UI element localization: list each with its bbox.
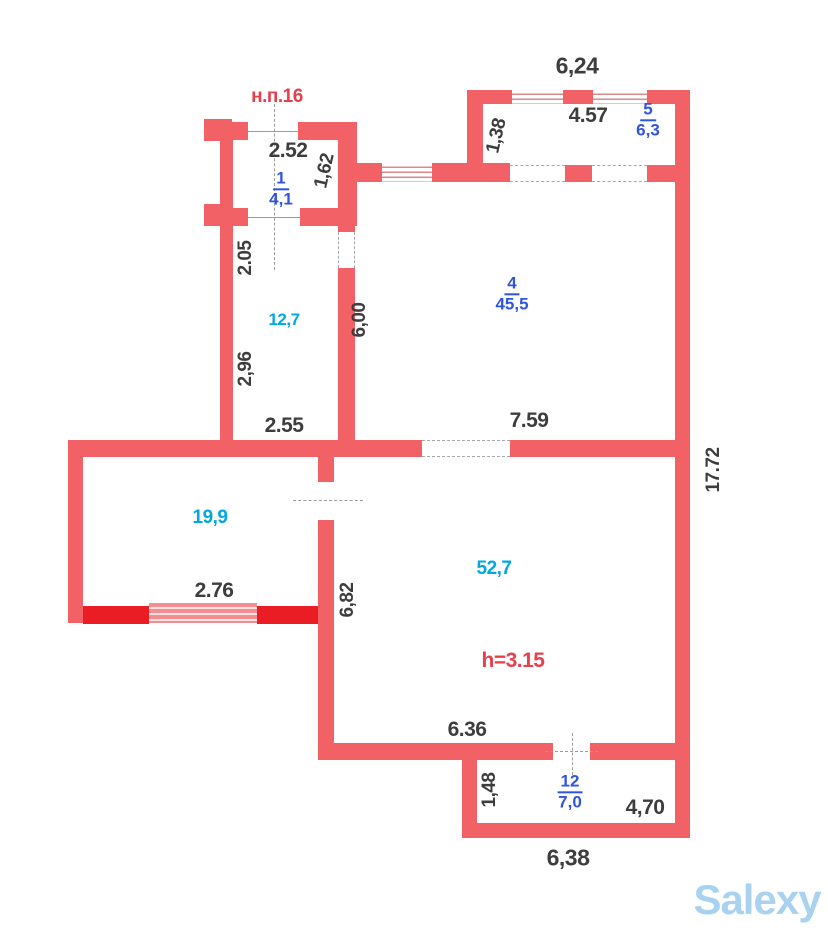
wall-segment: [565, 165, 592, 182]
axis-line: [545, 751, 598, 752]
dimension-label: 2.76: [195, 579, 234, 603]
dimension-label: 6.36: [448, 718, 487, 742]
dimension-label: 2.55: [265, 414, 304, 438]
dimension-label: 4,70: [626, 796, 665, 820]
dimension-label: 2,96: [235, 352, 257, 387]
room-label: 4 45,5: [495, 274, 528, 313]
wall-segment: [204, 208, 248, 226]
wall-segment: [68, 440, 83, 623]
dimension-label: 2.52: [269, 139, 308, 163]
dimension-label: 1,38: [482, 116, 511, 155]
room-number: 5: [640, 100, 655, 121]
wall-segment: [338, 208, 355, 232]
wall-segment: [318, 520, 334, 745]
wall-segment: [462, 823, 690, 838]
wall-segment: [338, 268, 355, 445]
room-area: 7,0: [558, 793, 582, 812]
plan-title: н.п.16: [251, 86, 303, 108]
doorway-opening: [338, 232, 355, 268]
room-label: 12 7,0: [558, 772, 583, 811]
highlighted-wall-segment: [257, 606, 318, 624]
doorway-opening: [592, 165, 647, 182]
wall-segment: [647, 165, 675, 182]
window-symbol: [248, 122, 298, 140]
room-number: 1: [273, 169, 288, 190]
wall-segment: [357, 163, 382, 182]
dimension-label: 17.72: [703, 447, 725, 492]
dimension-label: 6,38: [547, 845, 590, 872]
doorway-opening: [422, 440, 510, 457]
dimension-label: 6,24: [556, 53, 599, 80]
dimension-label: 1,48: [479, 773, 501, 808]
floor-plan: н.п.16 6,24 4.57 1,38 2.52 1,62 2.05 2,9…: [0, 0, 828, 930]
area-label: 52,7: [477, 558, 512, 580]
wall-segment: [675, 90, 690, 838]
wall-segment: [563, 90, 593, 104]
window-symbol: [318, 482, 334, 520]
room-label: 1 4,1: [269, 169, 293, 208]
room-area: 45,5: [495, 295, 528, 314]
salexy-watermark: Salexy: [693, 876, 820, 924]
wall-segment: [467, 90, 512, 104]
area-label: 12,7: [268, 310, 299, 330]
dimension-label: 6,00: [349, 303, 371, 338]
window-symbol: [382, 163, 432, 182]
doorway-opening: [510, 165, 565, 182]
dimension-label: 6,82: [337, 583, 359, 618]
dimension-label: 4.57: [569, 104, 608, 128]
room-area: 6,3: [636, 121, 660, 140]
ceiling-height-label: h=3.15: [482, 649, 545, 673]
axis-line: [572, 733, 573, 775]
axis-line: [293, 500, 363, 501]
room-area: 4,1: [269, 190, 293, 209]
wall-segment: [220, 226, 233, 445]
wall-segment: [318, 743, 553, 760]
wall-segment: [590, 743, 690, 760]
room-number: 12: [558, 772, 583, 793]
room-number: 4: [504, 274, 519, 295]
dimension-label: 2.05: [235, 241, 257, 276]
area-label: 19,9: [193, 507, 228, 529]
room-label: 5 6,3: [636, 100, 660, 139]
wall-segment: [68, 440, 422, 457]
window-symbol: [149, 603, 257, 623]
highlighted-wall-segment: [83, 606, 149, 624]
wall-segment: [510, 440, 675, 457]
dimension-label: 1,62: [310, 151, 339, 190]
window-symbol: [512, 90, 563, 104]
dimension-label: 7.59: [510, 409, 549, 433]
wall-segment: [318, 440, 334, 482]
